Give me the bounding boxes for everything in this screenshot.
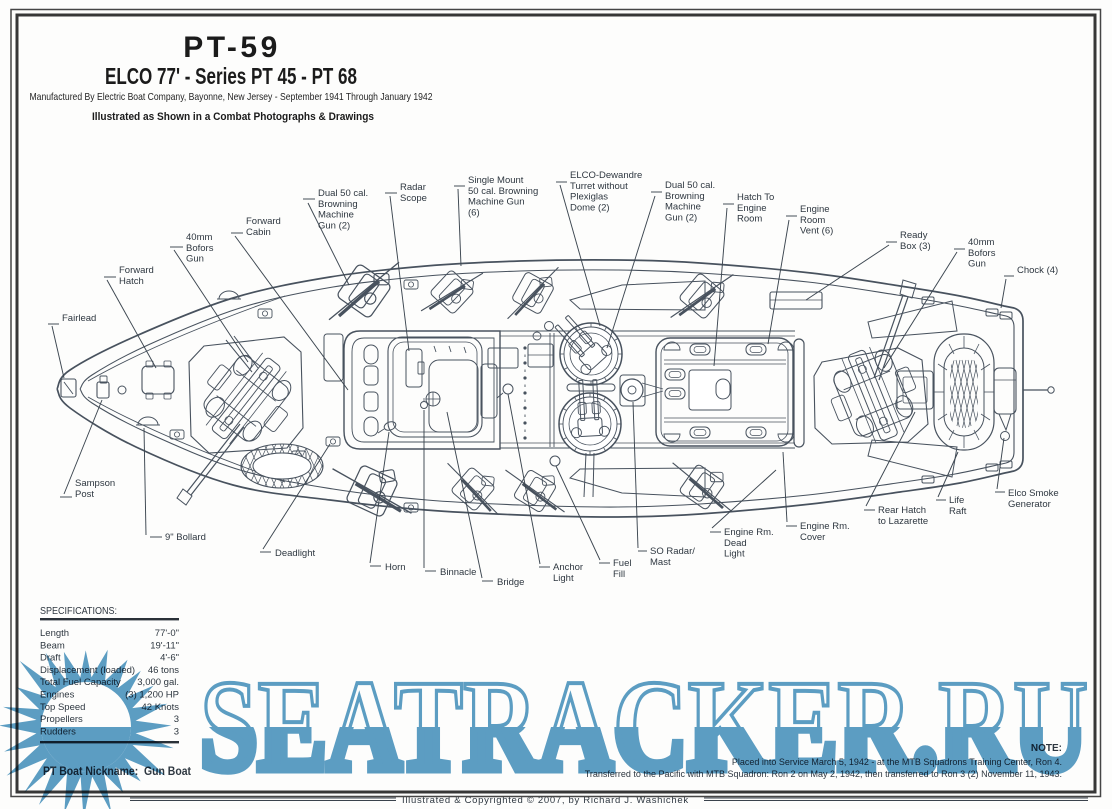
svg-text:Box (3): Box (3) (900, 241, 931, 252)
svg-text:4'-6": 4'-6" (160, 653, 179, 664)
svg-text:Dead: Dead (724, 538, 747, 549)
svg-text:Vent (6): Vent (6) (800, 226, 833, 237)
svg-text:Ready: Ready (900, 230, 928, 241)
svg-text:Single Mount: Single Mount (468, 175, 524, 186)
svg-text:Length: Length (40, 628, 69, 639)
svg-text:Hatch To: Hatch To (737, 192, 774, 203)
svg-text:Hatch: Hatch (119, 276, 144, 287)
svg-text:Manufactured By Electric Boat: Manufactured By Electric Boat Company, B… (30, 91, 433, 103)
svg-text:Forward: Forward (246, 216, 281, 227)
svg-text:3: 3 (174, 714, 179, 725)
svg-text:Horn: Horn (385, 562, 406, 573)
svg-text:Gun: Gun (968, 259, 986, 270)
svg-text:SPECIFICATIONS:: SPECIFICATIONS: (40, 606, 117, 617)
svg-text:40mm: 40mm (968, 237, 994, 248)
svg-text:Elco Smoke: Elco Smoke (1008, 488, 1059, 499)
svg-text:Chock (4): Chock (4) (1017, 265, 1058, 276)
svg-text:Gun (2): Gun (2) (318, 220, 350, 231)
svg-text:Scope: Scope (400, 193, 427, 204)
svg-text:Turret without: Turret without (570, 181, 628, 192)
svg-text:PT-59: PT-59 (183, 31, 281, 64)
svg-text:Illustrated as Shown in a Comb: Illustrated as Shown in a Combat Photogr… (92, 111, 374, 123)
svg-text:40mm: 40mm (186, 232, 212, 243)
svg-text:Plexiglas: Plexiglas (570, 192, 608, 203)
svg-text:Rear Hatch: Rear Hatch (878, 505, 926, 516)
svg-text:Sampson: Sampson (75, 478, 115, 489)
svg-text:Beam: Beam (40, 640, 65, 651)
svg-text:Bofors: Bofors (968, 248, 996, 259)
svg-text:Machine Gun: Machine Gun (468, 197, 525, 208)
svg-text:Dome (2): Dome (2) (570, 202, 610, 213)
svg-text:50 cal. Browning: 50 cal. Browning (468, 186, 538, 197)
svg-text:Life: Life (949, 495, 964, 506)
svg-text:Mast: Mast (650, 557, 671, 568)
svg-text:3: 3 (174, 726, 179, 737)
svg-text:Bofors: Bofors (186, 243, 214, 254)
svg-text:19'-11": 19'-11" (150, 640, 179, 651)
svg-text:Generator: Generator (1008, 499, 1051, 510)
svg-text:Binnacle: Binnacle (440, 567, 476, 578)
svg-text:Engine Rm.: Engine Rm. (800, 521, 850, 532)
svg-text:Cabin: Cabin (246, 227, 271, 238)
svg-text:Forward: Forward (119, 265, 154, 276)
svg-text:ELCO 77' - Series PT 45 - PT 6: ELCO 77' - Series PT 45 - PT 68 (105, 63, 357, 89)
svg-text:Gun (2): Gun (2) (665, 212, 697, 223)
svg-text:Light: Light (553, 573, 574, 584)
svg-text:Room: Room (737, 214, 762, 225)
svg-text:77'-0": 77'-0" (155, 628, 179, 639)
svg-text:Bridge: Bridge (497, 577, 524, 588)
svg-text:Fill: Fill (613, 569, 625, 580)
svg-text:Machine: Machine (318, 210, 354, 221)
svg-text:Fuel: Fuel (613, 558, 631, 569)
svg-text:ELCO-Dewandre: ELCO-Dewandre (570, 170, 642, 181)
svg-text:Dual 50 cal.: Dual 50 cal. (318, 188, 368, 199)
svg-text:Light: Light (724, 549, 745, 560)
svg-text:46 tons: 46 tons (148, 665, 179, 676)
svg-text:Room: Room (800, 215, 825, 226)
svg-text:SO Radar/: SO Radar/ (650, 546, 695, 557)
svg-text:Engine: Engine (800, 204, 830, 215)
svg-text:(6): (6) (468, 207, 480, 218)
svg-text:Browning: Browning (665, 191, 705, 202)
svg-text:Raft: Raft (949, 506, 967, 517)
svg-text:Deadlight: Deadlight (275, 548, 315, 559)
svg-text:Fairlead: Fairlead (62, 313, 96, 324)
svg-text:Post: Post (75, 489, 94, 500)
svg-text:Gun: Gun (186, 254, 204, 265)
svg-text:Radar: Radar (400, 182, 426, 193)
svg-text:Dual 50 cal.: Dual 50 cal. (665, 180, 715, 191)
svg-text:Anchor: Anchor (553, 562, 583, 573)
svg-text:to Lazarette: to Lazarette (878, 516, 928, 527)
svg-text:3,000 gal.: 3,000 gal. (137, 677, 179, 688)
svg-text:Engine Rm.: Engine Rm. (724, 527, 774, 538)
svg-text:Machine: Machine (665, 202, 701, 213)
svg-text:Cover: Cover (800, 532, 825, 543)
svg-text:Browning: Browning (318, 199, 358, 210)
svg-text:9" Bollard: 9" Bollard (165, 532, 206, 543)
svg-text:Engine: Engine (737, 203, 767, 214)
